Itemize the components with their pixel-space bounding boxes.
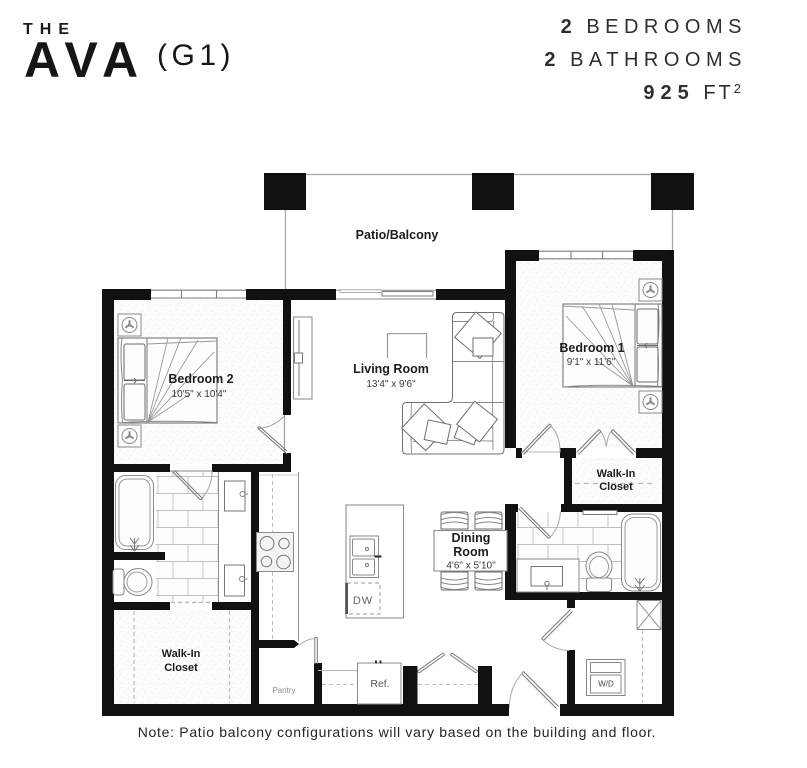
svg-text:Living Room: Living Room [353, 362, 429, 376]
svg-text:13'4" x 9'6": 13'4" x 9'6" [366, 379, 416, 390]
svg-text:AVA: AVA [24, 32, 146, 88]
svg-text:Bedroom 1: Bedroom 1 [559, 341, 624, 355]
svg-text:4'6" x 5'10": 4'6" x 5'10" [446, 561, 496, 572]
svg-text:Closet: Closet [164, 662, 198, 674]
svg-text:925 FT2: 925 FT2 [643, 81, 744, 104]
svg-text:DW: DW [353, 595, 373, 607]
svg-text:9'1" x 11'6": 9'1" x 11'6" [567, 357, 616, 368]
svg-text:10'5" x 10'4": 10'5" x 10'4" [172, 389, 227, 400]
svg-text:(G1): (G1) [157, 39, 235, 72]
svg-text:Closet: Closet [599, 481, 633, 493]
svg-text:2 BATHROOMS: 2 BATHROOMS [544, 49, 747, 71]
svg-text:Note: Patio balcony configurat: Note: Patio balcony configurations will … [138, 724, 657, 740]
svg-text:Dining: Dining [452, 531, 491, 545]
svg-text:Room: Room [453, 545, 488, 559]
svg-text:Walk-In: Walk-In [162, 648, 201, 660]
svg-text:Ref.: Ref. [370, 678, 389, 690]
svg-text:2 BEDROOMS: 2 BEDROOMS [561, 16, 747, 38]
svg-text:Patio/Balcony: Patio/Balcony [356, 228, 439, 242]
svg-text:Walk-In: Walk-In [597, 468, 636, 480]
svg-text:Pantry: Pantry [272, 686, 295, 695]
svg-text:Bedroom 2: Bedroom 2 [168, 372, 233, 386]
svg-text:W/D: W/D [598, 680, 614, 689]
